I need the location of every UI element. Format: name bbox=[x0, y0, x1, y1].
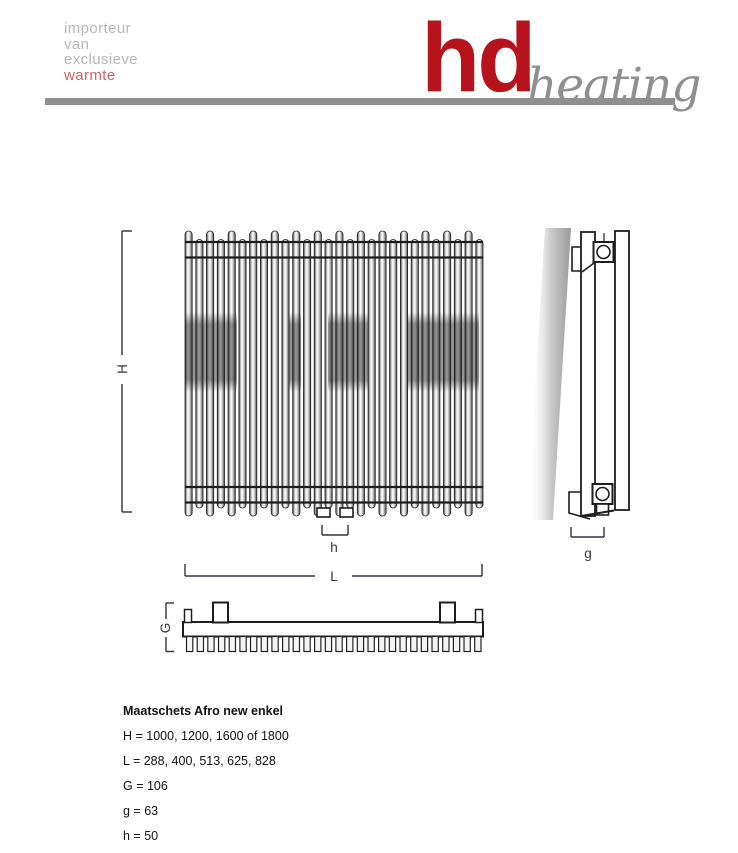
bottom-view-body bbox=[183, 603, 483, 637]
radiator-tube bbox=[390, 240, 397, 509]
bottom-view bbox=[183, 603, 483, 652]
dim-label-L: L bbox=[330, 569, 338, 584]
radiator-tube bbox=[368, 240, 375, 509]
side-view bbox=[527, 228, 629, 520]
radiator-tube bbox=[271, 231, 278, 516]
spec-line: G = 106 bbox=[123, 774, 289, 799]
radiator-tube bbox=[260, 240, 267, 509]
spec-sheet: Maatschets Afro new enkel H = 1000, 1200… bbox=[123, 699, 289, 849]
bottom-view-tooth bbox=[187, 637, 193, 652]
bottom-view-tooth bbox=[283, 637, 289, 652]
front-view-connection-stubs bbox=[317, 508, 353, 517]
radiator-tube bbox=[282, 240, 289, 509]
bottom-view-tooth bbox=[304, 637, 310, 652]
radiator-tube bbox=[314, 231, 321, 516]
radiator-tube bbox=[304, 240, 311, 509]
bottom-view-teeth bbox=[187, 637, 482, 652]
bottom-view-tooth bbox=[368, 637, 374, 652]
dim-label-h: h bbox=[330, 540, 338, 555]
spec-title: Maatschets Afro new enkel bbox=[123, 699, 289, 724]
bottom-view-tooth bbox=[443, 637, 449, 652]
radiator-tube bbox=[400, 231, 407, 516]
bottom-view-tooth bbox=[379, 637, 385, 652]
radiator-tube bbox=[250, 231, 257, 516]
bottom-view-tooth bbox=[240, 637, 246, 652]
radiator-dimension-drawing: H h L g G bbox=[0, 0, 738, 853]
front-view-shading bbox=[185, 312, 479, 392]
spec-line: h = 50 bbox=[123, 824, 289, 849]
bottom-view-tooth bbox=[464, 637, 470, 652]
datasheet-page: importeur van exclusieve warmte hd heati… bbox=[0, 0, 738, 853]
bottom-view-tooth bbox=[432, 637, 438, 652]
spec-line: g = 63 bbox=[123, 799, 289, 824]
bottom-view-tooth bbox=[421, 637, 427, 652]
bottom-view-tooth bbox=[208, 637, 214, 652]
bottom-view-tooth bbox=[293, 637, 299, 652]
spec-line: L = 288, 400, 513, 625, 828 bbox=[123, 749, 289, 774]
radiator-tube bbox=[239, 240, 246, 509]
bottom-view-tooth bbox=[315, 637, 321, 652]
bottom-view-tooth bbox=[357, 637, 363, 652]
bottom-view-tooth bbox=[197, 637, 203, 652]
bottom-view-tooth bbox=[400, 637, 406, 652]
bottom-view-tooth bbox=[229, 637, 235, 652]
radiator-tube bbox=[379, 231, 386, 516]
bottom-view-tooth bbox=[347, 637, 353, 652]
front-view bbox=[185, 231, 483, 517]
side-view-body bbox=[581, 231, 629, 516]
dim-label-G: G bbox=[158, 623, 173, 634]
bottom-view-tooth bbox=[261, 637, 267, 652]
spec-line: H = 1000, 1200, 1600 of 1800 bbox=[123, 724, 289, 749]
bottom-view-tooth bbox=[453, 637, 459, 652]
bottom-view-tooth bbox=[389, 637, 395, 652]
bottom-view-tooth bbox=[219, 637, 225, 652]
bottom-view-tooth bbox=[475, 637, 481, 652]
dim-label-H: H bbox=[115, 364, 130, 374]
bottom-view-tooth bbox=[325, 637, 331, 652]
dim-label-g: g bbox=[584, 546, 592, 561]
bottom-view-tooth bbox=[411, 637, 417, 652]
wall-shading bbox=[527, 228, 571, 520]
bottom-view-tooth bbox=[336, 637, 342, 652]
bottom-view-tooth bbox=[272, 637, 278, 652]
bottom-view-tooth bbox=[251, 637, 257, 652]
